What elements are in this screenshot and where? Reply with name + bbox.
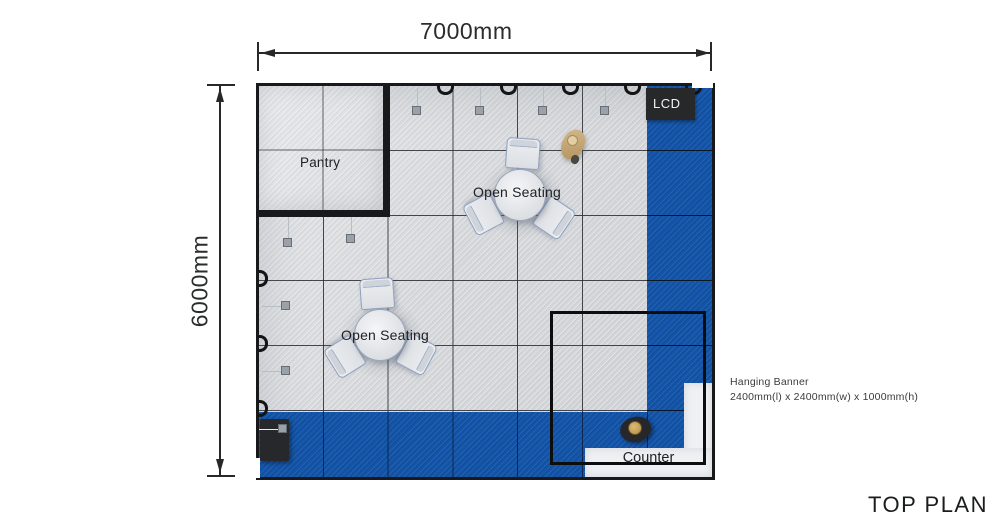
page-title: TOP PLAN [868,492,988,518]
spotlight-stem [605,88,606,107]
lcd-screen: LCD [646,88,695,120]
spotlight-head-icon [281,301,290,310]
spotlight-head-icon [412,106,421,115]
open-seating-label-2: Open Seating [341,327,429,343]
booth-plan: Pantry [256,83,715,480]
spotlight-stem [351,217,352,235]
dimension-width-line [259,52,711,54]
spotlight-stem [288,217,289,239]
arrowhead-up-icon [216,88,224,102]
dimension-width-tick-right [710,42,712,71]
person-foot [570,154,581,165]
hanging-banner-note-spec: 2400mm(l) x 2400mm(w) x 1000mm(h) [730,390,918,405]
person-head [567,135,578,146]
spotlight-head-icon [281,366,290,375]
hanging-banner-note-title: Hanging Banner [730,375,918,390]
storage-leader-line [259,429,280,430]
dimension-height-tick-top [207,84,235,86]
spotlight-head-icon [346,234,355,243]
spotlight-head-icon [475,106,484,115]
arrowhead-left-icon [261,49,275,57]
arrowhead-down-icon [216,459,224,473]
dimension-height-line [219,86,221,476]
spotlight-stem [262,306,282,307]
spotlight-head-icon [600,106,609,115]
dimension-height-tick-bottom [207,475,235,477]
spotlight-stem [480,88,481,107]
arrowhead-right-icon [696,49,710,57]
spotlight-head-icon [278,424,287,433]
hanging-banner-outline [550,311,706,465]
spotlight-head-icon [283,238,292,247]
wall-gap [692,83,713,88]
top-plan-page: 7000mm 6000mm Pantry [0,0,1000,527]
hanging-banner-note: Hanging Banner 2400mm(l) x 2400mm(w) x 1… [730,375,918,404]
dimension-width-tick-left [257,42,259,71]
counter-label: Counter [585,450,712,466]
pantry-label: Pantry [300,155,340,170]
dimension-height-label: 6000mm [187,235,214,327]
open-seating-label-1: Open Seating [473,184,561,200]
lcd-label: LCD [653,96,681,111]
spotlight-stem [417,88,418,107]
spotlight-stem [262,371,282,372]
wall-gap [256,458,260,478]
dimension-width-label: 7000mm [420,18,512,45]
person-standing [558,122,590,168]
spotlight-stem [543,88,544,107]
pantry-room [259,86,390,217]
